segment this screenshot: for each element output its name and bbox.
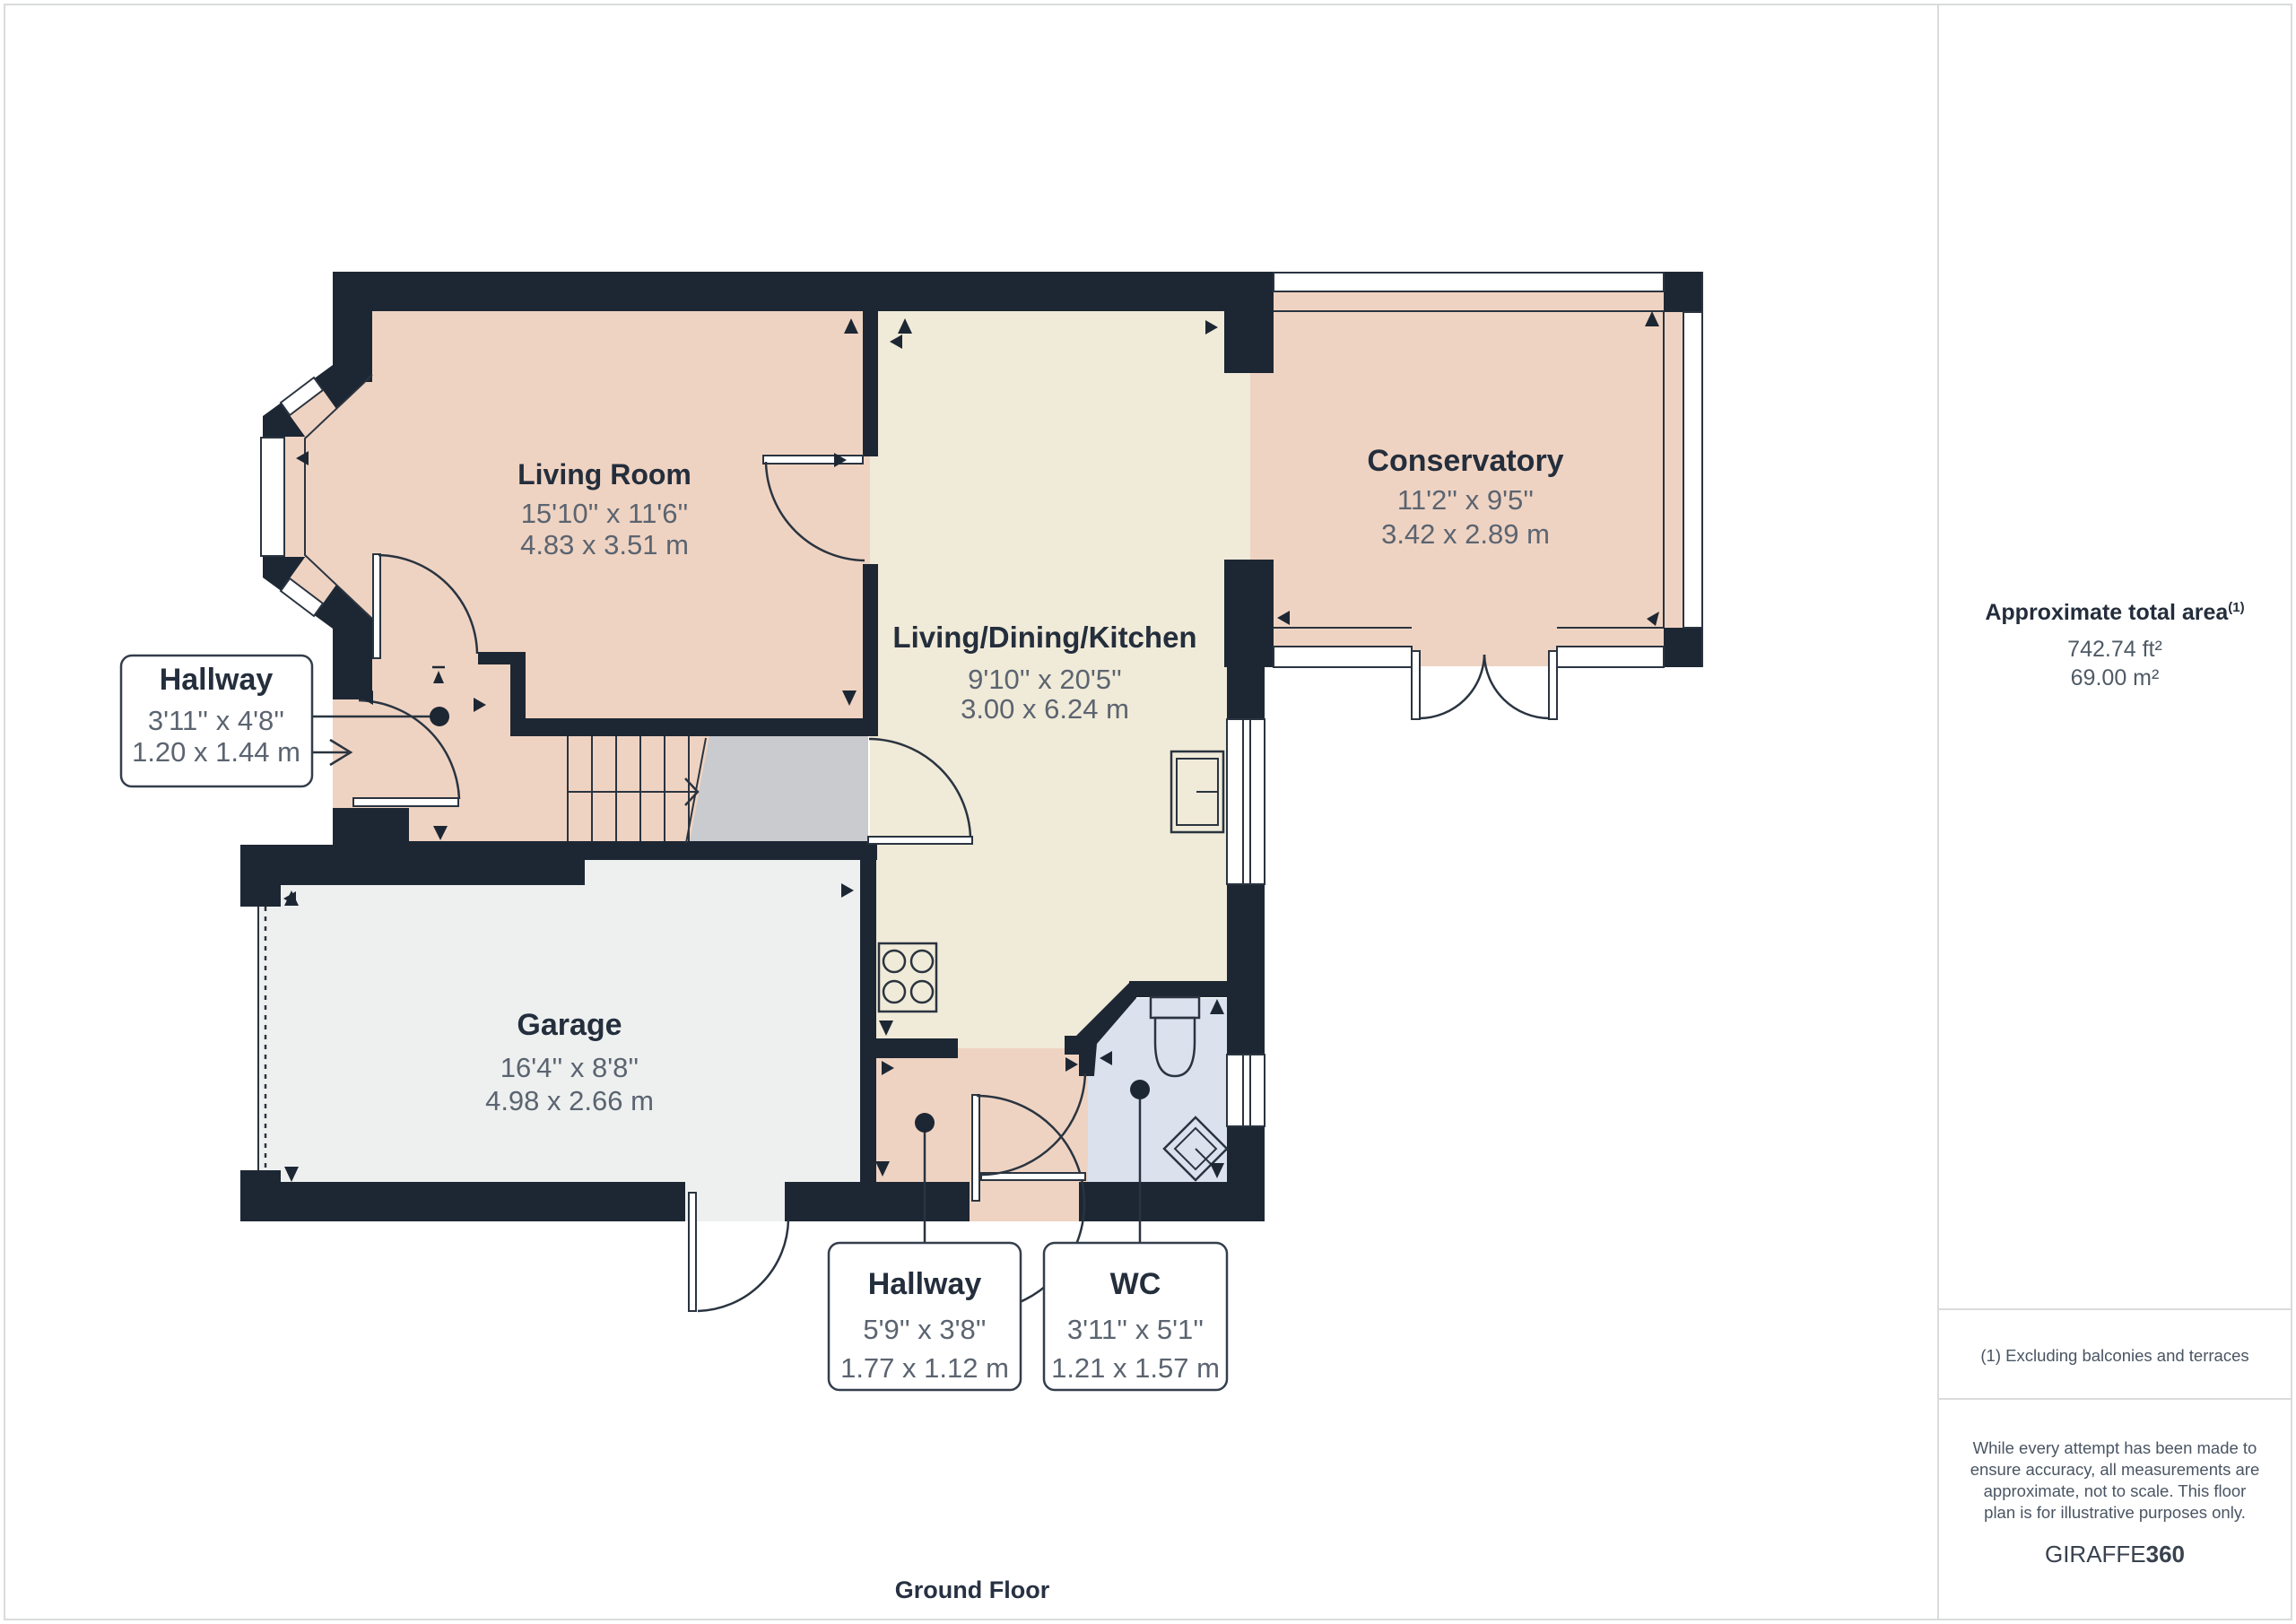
svg-text:9'10'' x 20'5'': 9'10'' x 20'5'' — [968, 664, 1122, 695]
svg-text:1.77 x 1.12 m: 1.77 x 1.12 m — [840, 1352, 1009, 1384]
svg-text:While every attempt has been m: While every attempt has been made to — [1973, 1438, 2257, 1457]
svg-text:69.00 m²: 69.00 m² — [2071, 665, 2160, 690]
svg-text:Garage: Garage — [517, 1008, 622, 1042]
svg-text:1.20 x 1.44 m: 1.20 x 1.44 m — [132, 736, 300, 768]
svg-text:16'4'' x 8'8'': 16'4'' x 8'8'' — [500, 1052, 639, 1083]
svg-text:4.83 x 3.51 m: 4.83 x 3.51 m — [520, 529, 689, 560]
svg-text:11'2'' x 9'5'': 11'2'' x 9'5'' — [1397, 484, 1534, 516]
svg-text:Living/Dining/Kitchen: Living/Dining/Kitchen — [892, 621, 1196, 654]
svg-text:ensure accuracy, all measureme: ensure accuracy, all measurements are — [1970, 1460, 2260, 1479]
svg-text:3'11'' x 4'8'': 3'11'' x 4'8'' — [148, 705, 284, 736]
svg-text:742.74 ft²: 742.74 ft² — [2067, 637, 2162, 662]
svg-text:3.00 x 6.24 m: 3.00 x 6.24 m — [961, 693, 1129, 725]
svg-text:Hallway: Hallway — [160, 663, 274, 697]
svg-text:3'11'' x 5'1'': 3'11'' x 5'1'' — [1067, 1314, 1204, 1345]
svg-text:Conservatory: Conservatory — [1367, 444, 1563, 478]
svg-text:approximate, not to scale. Thi: approximate, not to scale. This floor — [1984, 1481, 2247, 1500]
svg-text:plan is for illustrative purpo: plan is for illustrative purposes only. — [1984, 1503, 2246, 1522]
svg-text:15'10'' x 11'6'': 15'10'' x 11'6'' — [521, 498, 689, 529]
svg-text:Ground Floor: Ground Floor — [895, 1576, 1050, 1603]
svg-text:Living Room: Living Room — [517, 458, 691, 491]
svg-text:WC: WC — [1110, 1267, 1161, 1301]
svg-text:GIRAFFE360: GIRAFFE360 — [2045, 1541, 2185, 1568]
svg-text:3.42 x 2.89 m: 3.42 x 2.89 m — [1381, 518, 1550, 550]
svg-text:4.98 x 2.66 m: 4.98 x 2.66 m — [485, 1085, 654, 1116]
svg-text:Approximate total area(1): Approximate total area(1) — [1985, 600, 2244, 625]
svg-text:1.21 x 1.57 m: 1.21 x 1.57 m — [1051, 1352, 1220, 1384]
svg-text:5'9'' x 3'8'': 5'9'' x 3'8'' — [863, 1314, 986, 1345]
svg-text:Hallway: Hallway — [868, 1267, 982, 1301]
svg-text:(1) Excluding balconies and te: (1) Excluding balconies and terraces — [1980, 1346, 2248, 1365]
